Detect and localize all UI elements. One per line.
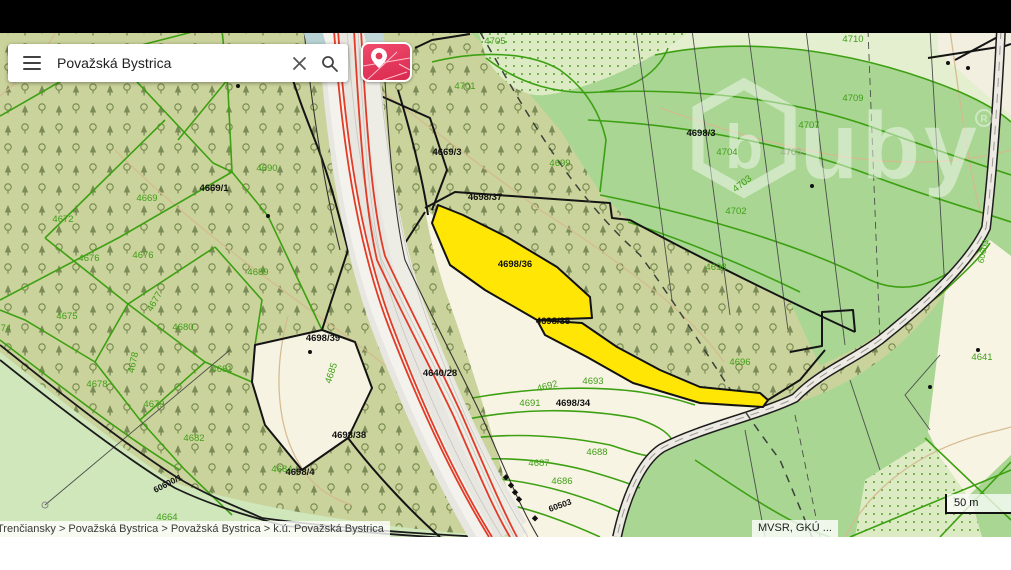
parcel-label: 4698/37: [468, 192, 502, 203]
map-type-button[interactable]: [361, 42, 412, 82]
parcel-label: 4698: [705, 262, 726, 273]
parcel-label: 4698/4: [285, 467, 315, 478]
parcel-label: 4701: [454, 81, 475, 92]
map-attribution: MVSR, GKÚ ...: [752, 520, 838, 537]
parcel-label: 4691: [519, 398, 540, 409]
parcel-label: 4690: [256, 163, 277, 174]
hamburger-icon[interactable]: [23, 56, 41, 70]
parcel-label: 4709: [842, 93, 863, 104]
parcel-label: 4698/36: [498, 259, 532, 270]
parcel-label: 4672: [52, 214, 73, 225]
parcel-label: 4698/35: [536, 316, 571, 327]
search-input[interactable]: [55, 54, 284, 72]
scale-text: 50 m: [954, 497, 978, 509]
parcel-label: 4679: [143, 399, 164, 410]
top-bar: [0, 0, 1011, 33]
map-pin-icon: [371, 48, 387, 68]
parcel-label: 4687: [528, 458, 549, 469]
parcel-label: 4682: [183, 433, 204, 444]
parcel-label: 4693: [582, 376, 603, 387]
parcel-label: 4669/1: [199, 183, 229, 194]
parcel-label: 4689: [247, 267, 268, 278]
parcel-label: 4710: [842, 34, 863, 45]
parcel-label: 4702: [725, 206, 746, 217]
close-icon[interactable]: [284, 48, 314, 78]
parcel-label: 4698/38: [332, 430, 366, 441]
watermark-uby: uby: [800, 93, 981, 199]
search-card: [8, 44, 348, 82]
parcel-label: 4681: [211, 364, 232, 375]
parcel-label: 4698/3: [686, 128, 715, 139]
parcel-label: 4704: [716, 147, 737, 158]
app-window: b uby R 47054701469947104709470747044706…: [0, 0, 1011, 570]
parcel-label: 4678: [86, 379, 107, 390]
parcel-label: 4640/28: [423, 368, 457, 379]
parcel-label: 4688: [586, 447, 607, 458]
parcel-label: 4686: [551, 476, 572, 487]
parcel-label: 4680: [172, 322, 193, 333]
breadcrumb-text[interactable]: Trenčiansky > Považská Bystrica > Považs…: [0, 523, 384, 535]
attribution-text: MVSR, GKÚ ...: [758, 522, 832, 534]
parcel-label: 4698/39: [306, 333, 340, 344]
parcel-label: 4699: [549, 158, 570, 169]
parcel-label: 4707: [798, 120, 819, 131]
parcel-label: 4676: [78, 253, 99, 264]
parcel-label: 4706: [780, 147, 801, 158]
watermark-r: R: [980, 114, 988, 125]
parcel-label: 4675: [56, 311, 77, 322]
parcel-label: 4698/34: [556, 398, 591, 409]
parcel-label: 4674: [0, 323, 11, 334]
parcel-label: 4676: [132, 250, 153, 261]
parcel-label: 4641: [971, 352, 992, 363]
parcel-label: 4705: [484, 36, 505, 47]
magnifier-icon[interactable]: [314, 48, 344, 78]
parcel-label: 4669: [136, 193, 157, 204]
scale-bar: 50 m: [945, 494, 1011, 514]
breadcrumb[interactable]: Trenčiansky > Považská Bystrica > Považs…: [0, 521, 390, 537]
parcel-label: 4696: [729, 357, 750, 368]
parcel-label: 4669/3: [432, 147, 461, 158]
